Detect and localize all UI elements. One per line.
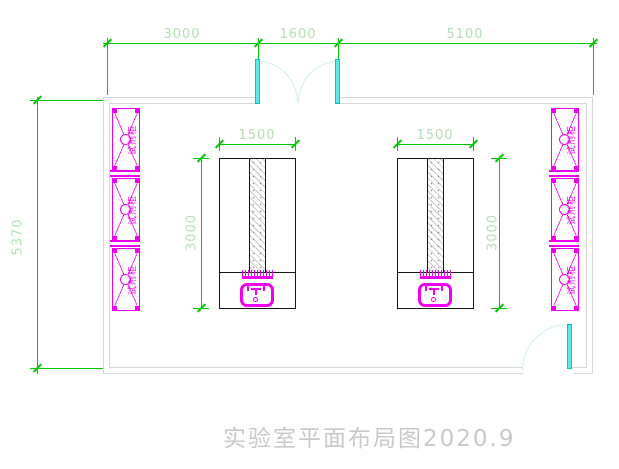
reagent-cabinet: 试剂柜 bbox=[551, 178, 579, 241]
cabinet-corner bbox=[551, 108, 556, 113]
cabinet-label: 试剂柜 bbox=[565, 194, 578, 224]
cabinet-label: 试剂柜 bbox=[565, 124, 578, 154]
cabinet-label: 试剂柜 bbox=[565, 264, 578, 294]
cabinet-label: 试剂柜 bbox=[126, 194, 139, 224]
wall-right-inner bbox=[586, 103, 587, 368]
dim-ext-left-bottom bbox=[30, 368, 103, 369]
dim-label-bench-left-depth: 3000 bbox=[185, 205, 198, 261]
cabinet-corner bbox=[112, 306, 117, 311]
bench-reagent-shelf-left bbox=[249, 159, 266, 273]
dim-ext-top-4 bbox=[593, 38, 594, 95]
dim-label-bench-right-width: 1500 bbox=[405, 128, 465, 143]
faucet-handle bbox=[247, 286, 249, 291]
door-leaf-bottom bbox=[567, 324, 572, 369]
sink-drain bbox=[431, 297, 436, 302]
cabinet-corner bbox=[551, 248, 556, 253]
bench-reagent-shelf-right bbox=[427, 159, 444, 273]
faucet-handle bbox=[263, 286, 265, 291]
sink-right bbox=[418, 283, 452, 307]
reagent-cabinet: 试剂柜 bbox=[112, 108, 140, 171]
dim-line-bench-left-width bbox=[219, 144, 296, 145]
wall-bottom-inner-right bbox=[572, 367, 587, 368]
sink-grate-bar-left bbox=[242, 276, 273, 279]
dim-line-bench-right-width bbox=[397, 144, 474, 145]
sink-grate-bar-right bbox=[420, 276, 451, 279]
dim-label-top-2: 1600 bbox=[268, 27, 328, 42]
dim-label-top-1: 3000 bbox=[152, 27, 212, 42]
cabinet-label: 试剂柜 bbox=[126, 264, 139, 294]
cabinet-separator bbox=[110, 170, 140, 177]
reagent-cabinet: 试剂柜 bbox=[551, 108, 579, 171]
wall-top-inner-right bbox=[338, 103, 587, 104]
cabinet-corner bbox=[574, 306, 579, 311]
cabinet-corner bbox=[551, 178, 556, 183]
floor-plan: 3000 1600 5100 5370 试剂柜 试剂柜 试剂柜 试剂柜 bbox=[0, 0, 619, 469]
wall-bottom-inner-left bbox=[109, 367, 523, 368]
cabinet-corner bbox=[112, 108, 117, 113]
cabinet-separator bbox=[549, 170, 579, 177]
door-leaf-left bbox=[255, 59, 260, 104]
dim-label-bench-left-width: 1500 bbox=[227, 128, 287, 143]
wall-left-outer bbox=[103, 97, 104, 374]
dim-label-left-wall: 5370 bbox=[11, 210, 25, 265]
reagent-cabinet: 试剂柜 bbox=[112, 248, 140, 311]
dim-line-left bbox=[37, 97, 38, 374]
dim-line-bench-left-depth bbox=[201, 158, 202, 308]
dim-label-bench-right-depth: 3000 bbox=[486, 205, 499, 261]
sink-left bbox=[240, 283, 274, 307]
door-swing-arc-left bbox=[258, 61, 298, 103]
cabinet-corner bbox=[551, 306, 556, 311]
cabinet-corner bbox=[135, 108, 140, 113]
drawing-title: 实验室平面布局图2020.9 bbox=[223, 419, 515, 453]
cabinet-label: 试剂柜 bbox=[126, 124, 139, 154]
cabinet-corner bbox=[135, 178, 140, 183]
dim-ext-left-top bbox=[30, 100, 103, 101]
cabinet-separator bbox=[549, 240, 579, 247]
cabinet-corner bbox=[135, 306, 140, 311]
dim-line-top bbox=[103, 43, 597, 44]
faucet-drop bbox=[255, 290, 257, 295]
dim-label-top-3: 5100 bbox=[435, 27, 495, 42]
wall-top-outer-right bbox=[338, 97, 593, 98]
cabinet-corner bbox=[574, 108, 579, 113]
wall-top-outer-left bbox=[103, 97, 258, 98]
wall-left-inner bbox=[109, 103, 110, 368]
wall-top-inner-left bbox=[109, 103, 258, 104]
reagent-cabinet: 试剂柜 bbox=[112, 178, 140, 241]
faucet-handle bbox=[425, 286, 427, 291]
wall-bottom-outer-right bbox=[572, 373, 593, 374]
cabinet-corner bbox=[135, 248, 140, 253]
cabinet-corner bbox=[574, 178, 579, 183]
faucet-handle bbox=[441, 286, 443, 291]
sink-drain bbox=[253, 297, 258, 302]
wall-right-outer bbox=[592, 97, 593, 374]
wall-bottom-outer-left bbox=[103, 373, 523, 374]
faucet-drop bbox=[433, 290, 435, 295]
door-leaf-right bbox=[335, 59, 340, 104]
reagent-cabinet: 试剂柜 bbox=[551, 248, 579, 311]
cabinet-corner bbox=[112, 248, 117, 253]
cabinet-corner bbox=[574, 248, 579, 253]
door-swing-arc-right bbox=[298, 61, 338, 103]
dim-ext-top-1 bbox=[107, 38, 108, 95]
cabinet-separator bbox=[110, 240, 140, 247]
door-swing-arc-bottom bbox=[522, 324, 568, 370]
cabinet-corner bbox=[112, 178, 117, 183]
